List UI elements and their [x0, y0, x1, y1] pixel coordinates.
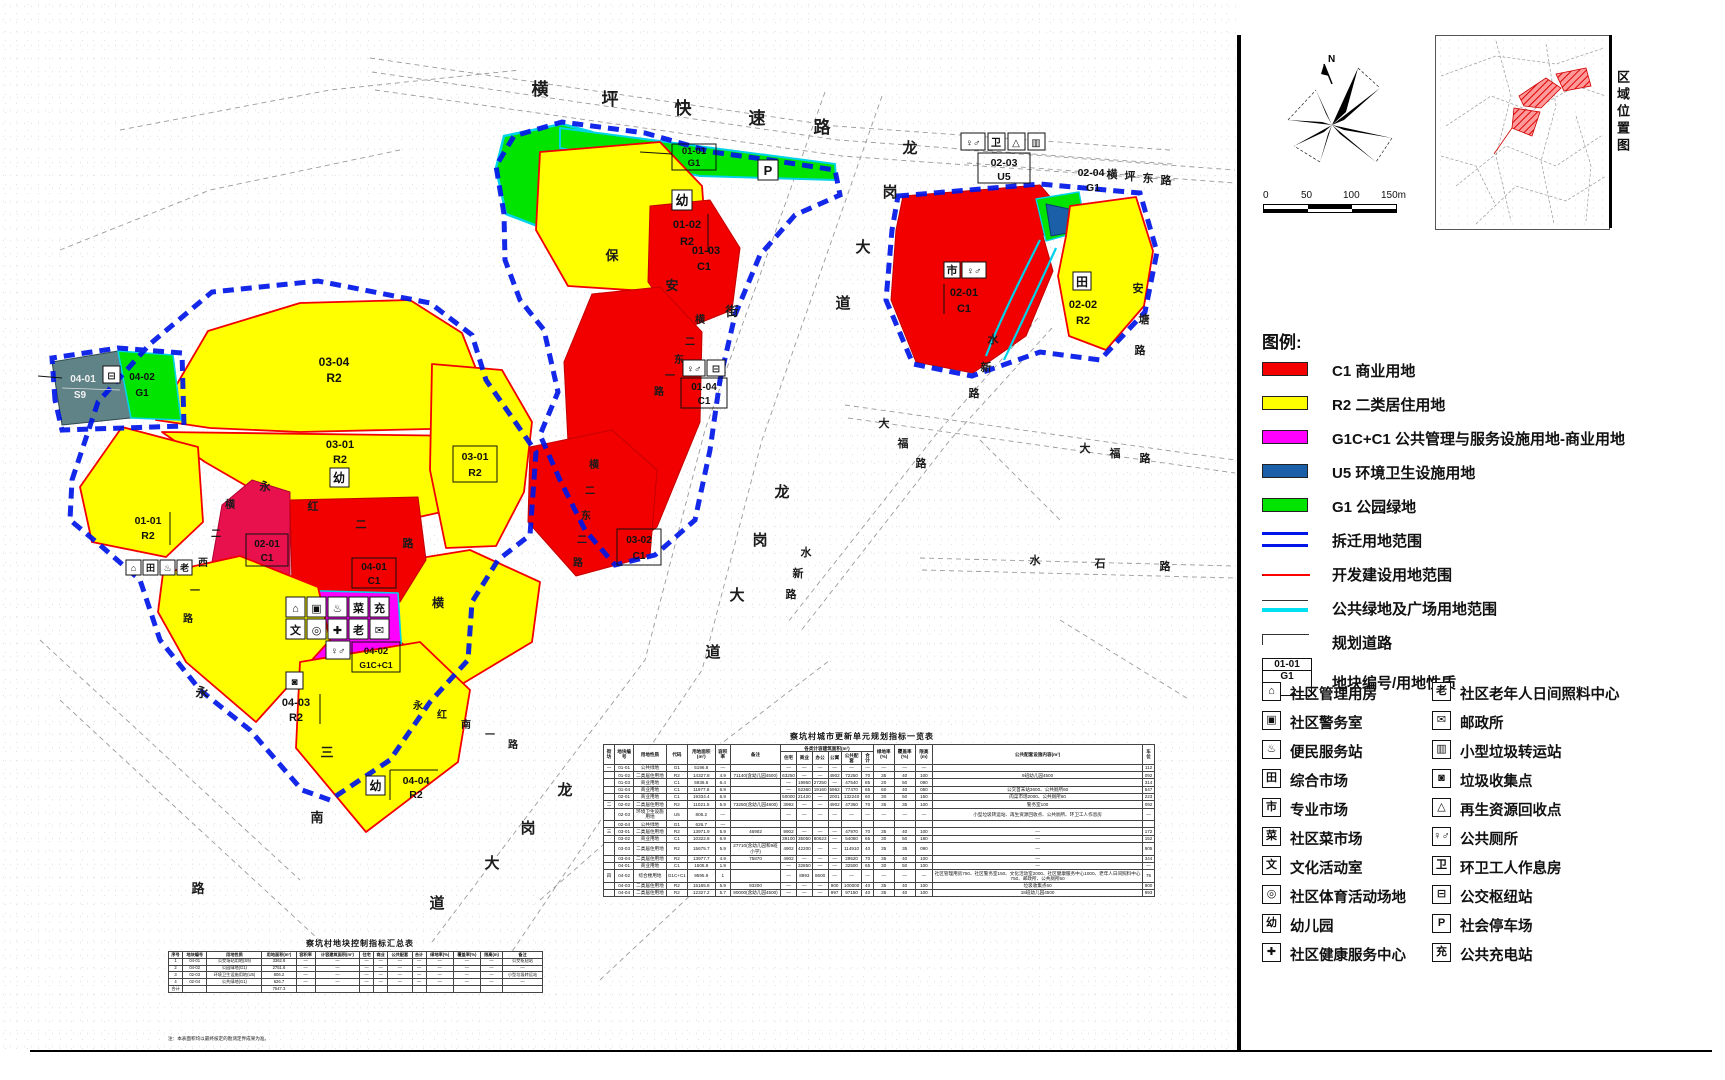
facility-icon: ♀♂ [1432, 827, 1451, 846]
sample-plot-code: 01-01 [1263, 659, 1311, 671]
svg-text:路: 路 [1161, 173, 1173, 187]
svg-text:路: 路 [573, 556, 584, 569]
svg-text:龙: 龙 [901, 139, 917, 157]
plan-sheet: 横坪快速路 横坪东路 龙岗大道 龙岗大道 龙岗大道 保安街 横二东一路 横二东二… [0, 0, 1725, 1080]
svg-text:大: 大 [729, 586, 744, 604]
svg-text:道: 道 [835, 294, 850, 312]
legend-item: G1 公园绿地 [1262, 496, 1722, 518]
facility-icon: 菜 [1262, 827, 1281, 846]
svg-text:04-02: 04-02 [129, 372, 155, 383]
facility-icon: ◙ [1432, 769, 1451, 788]
legend-item-label: C1 商业用地 [1332, 360, 1415, 381]
svg-text:三: 三 [320, 745, 333, 760]
sports-ground-icon: ◎ [307, 619, 326, 639]
svg-text:♨: ♨ [333, 603, 343, 615]
pro-market-icon: 市 [944, 262, 960, 278]
svg-text:△: △ [1012, 138, 1020, 149]
main-indicator-table: 街坊地块编号用地性质代码用地面积(m²)容积率备注各类计容建筑面积(m²)绿地率… [603, 744, 1155, 897]
svg-text:老: 老 [179, 562, 189, 573]
svg-text:水: 水 [988, 332, 1000, 346]
facility-label: 综合市场 [1290, 770, 1348, 791]
main-table-title: 察坑村城市更新单元规划指标一览表 [790, 731, 934, 742]
svg-text:R2: R2 [326, 371, 342, 385]
svg-text:坪: 坪 [1125, 170, 1136, 183]
legend-item-label: G1 公园绿地 [1332, 496, 1416, 517]
svg-text:二: 二 [685, 336, 695, 348]
svg-text:路: 路 [191, 881, 205, 896]
facility-label: 环卫工人作息房 [1460, 857, 1562, 878]
facility-icon: 充 [1432, 943, 1451, 962]
summary-table-title: 察坑村地块控制指标汇总表 [306, 938, 414, 949]
svg-text:二: 二 [585, 485, 595, 497]
svg-text:C1: C1 [261, 553, 274, 564]
svg-text:南: 南 [461, 718, 471, 731]
svg-text:南: 南 [310, 810, 323, 825]
svg-text:红: 红 [308, 499, 319, 513]
legend-key [1262, 574, 1310, 576]
legend-item-label: U5 环境卫生设施用地 [1332, 462, 1475, 483]
svg-text:♀♂: ♀♂ [967, 266, 982, 277]
svg-text:⌂: ⌂ [292, 603, 299, 615]
label-02-03: ♀♂ 卫 △ ▥ 02-03 U5 [961, 133, 1045, 183]
svg-text:▣: ▣ [311, 603, 321, 615]
sanitation-room-icon: 卫 [988, 133, 1005, 150]
facility-icon: △ [1432, 798, 1451, 817]
plot-03-04 [156, 300, 478, 432]
svg-text:01-01: 01-01 [135, 515, 162, 527]
svg-text:♀♂: ♀♂ [331, 646, 346, 657]
svg-text:G1: G1 [1086, 182, 1100, 194]
facility-icon: ⊟ [1432, 885, 1451, 904]
svg-text:C1: C1 [368, 576, 381, 587]
svg-text:街: 街 [724, 304, 738, 319]
svg-text:石: 石 [1094, 557, 1106, 570]
facility-label: 公交枢纽站 [1460, 886, 1533, 907]
svg-text:G1C+C1: G1C+C1 [359, 660, 393, 670]
svg-text:⊟: ⊟ [712, 364, 720, 375]
facility-icon: ✚ [1262, 943, 1281, 962]
svg-text:福: 福 [897, 436, 909, 450]
legend-item-label: 开发建设用地范围 [1332, 564, 1452, 585]
svg-text:龙: 龙 [556, 781, 572, 799]
svg-text:C1: C1 [697, 261, 711, 273]
legend-item-label: 公共绿地及广场用地范围 [1332, 598, 1497, 619]
facility-icon: 老 [1432, 682, 1451, 701]
facility-icon: ◎ [1262, 885, 1281, 904]
svg-text:大: 大 [855, 238, 870, 256]
market-icon: 田 [143, 560, 158, 575]
svg-text:04-01: 04-01 [361, 562, 387, 573]
svg-text:横: 横 [1107, 167, 1119, 181]
facility-label: 邮政所 [1460, 712, 1504, 733]
recycle-point-icon: △ [1008, 133, 1025, 150]
scale-tick: 50 [1301, 190, 1312, 201]
legend-item-label: 规划道路 [1332, 632, 1392, 653]
svg-text:路: 路 [508, 738, 519, 751]
svg-text:02-01: 02-01 [950, 287, 978, 299]
svg-text:永: 永 [412, 699, 424, 712]
plot-04-04 [296, 642, 470, 832]
legend-item: U5 环境卫生设施用地 [1262, 462, 1722, 484]
facility-icon: 文 [1262, 856, 1281, 875]
svg-text:新: 新 [793, 566, 804, 580]
svg-text:03-01: 03-01 [326, 439, 354, 451]
svg-text:保: 保 [604, 248, 619, 263]
facility-label: 社区警务室 [1290, 712, 1363, 733]
svg-text:二: 二 [356, 519, 367, 531]
facility-label: 公共厕所 [1460, 828, 1518, 849]
svg-text:G1: G1 [688, 158, 701, 169]
legend-key [1262, 600, 1308, 612]
svg-text:大: 大 [879, 416, 890, 430]
sheet-bottom-border [30, 1050, 1712, 1052]
svg-text:04-01: 04-01 [70, 374, 96, 385]
bus-hub-icon: ⊟ [103, 366, 120, 383]
svg-text:01-03: 01-03 [692, 245, 720, 257]
svg-text:坪: 坪 [602, 90, 619, 109]
svg-text:安: 安 [665, 278, 678, 293]
health-center-icon: ✚ [328, 619, 347, 639]
facility-icon: ▣ [1262, 711, 1281, 730]
svg-text:永: 永 [194, 685, 209, 700]
svg-text:R2: R2 [1076, 315, 1090, 327]
legend-item: C1 商业用地 [1262, 360, 1722, 382]
svg-text:01-02: 01-02 [673, 219, 701, 231]
legend-item-label: R2 二类居住用地 [1332, 394, 1445, 415]
svg-text:03-02: 03-02 [626, 535, 652, 546]
svg-text:R2: R2 [333, 454, 347, 466]
svg-text:02-03: 02-03 [991, 157, 1018, 169]
svg-text:岗: 岗 [882, 183, 897, 201]
svg-text:04-03: 04-03 [282, 697, 310, 709]
svg-text:✚: ✚ [333, 625, 342, 637]
legend-key [1262, 396, 1308, 410]
svg-text:⌂: ⌂ [131, 563, 136, 573]
svg-text:龙: 龙 [773, 483, 789, 501]
kindergarten-icon: 幼 [672, 190, 692, 210]
scale-tick: 0 [1263, 190, 1269, 201]
culture-room-icon: 文 [286, 619, 305, 639]
summary-table: 序号地块编号用地性质用地面积(m²)容积率计容建筑面积(m²)住宅商业公共配套合… [168, 951, 543, 993]
svg-text:◎: ◎ [312, 625, 322, 637]
locmap-divider [1609, 35, 1612, 228]
svg-text:02-02: 02-02 [1069, 299, 1097, 311]
facility-icon: 市 [1262, 798, 1281, 817]
svg-text:路: 路 [654, 385, 665, 398]
svg-text:红: 红 [437, 708, 447, 721]
svg-text:菜: 菜 [352, 601, 365, 615]
svg-text:G1: G1 [135, 388, 149, 399]
convenience-icon: ♨ [328, 597, 347, 617]
svg-text:岗: 岗 [752, 531, 767, 549]
facility-label: 社区老年人日间照料中心 [1460, 683, 1620, 704]
facility-label: 社会停车场 [1460, 915, 1533, 936]
svg-text:路: 路 [403, 536, 415, 550]
locmap-caption: 区域位置图 [1613, 70, 1632, 155]
svg-text:03-04: 03-04 [319, 355, 350, 369]
svg-text:C1: C1 [957, 303, 971, 315]
svg-text:塘: 塘 [1139, 312, 1150, 326]
svg-text:幼: 幼 [675, 193, 688, 208]
svg-text:♀♂: ♀♂ [966, 138, 981, 149]
svg-text:路: 路 [916, 456, 928, 470]
svg-text:路: 路 [786, 587, 798, 601]
legend-title: 图例: [1262, 328, 1302, 353]
svg-text:速: 速 [749, 108, 766, 128]
svg-text:04-02: 04-02 [364, 646, 388, 657]
svg-text:01-01: 01-01 [682, 146, 707, 157]
market-icon: 田 [1073, 272, 1091, 290]
svg-text:横: 横 [225, 498, 236, 511]
plot-02-01-east [891, 185, 1058, 373]
charging-icon: 充 [370, 597, 389, 617]
svg-text:♨: ♨ [163, 563, 171, 573]
svg-text:横: 横 [695, 313, 706, 326]
svg-text:二: 二 [211, 528, 221, 540]
svg-text:C1: C1 [633, 551, 646, 562]
svg-text:01-04: 01-04 [691, 382, 717, 393]
svg-text:横: 横 [589, 458, 600, 471]
legend-item: R2 二类居住用地 [1262, 394, 1722, 416]
svg-text:C1: C1 [698, 396, 711, 407]
public-toilet-icon: ♀♂ [683, 360, 705, 376]
location-inset-map [1435, 35, 1610, 230]
plot-02-02 [1058, 197, 1153, 350]
summary-table-note: 注：本表面积均以最终核定的勘测定界成果为准。 [168, 1036, 269, 1042]
facility-icon: 幼 [1262, 914, 1281, 933]
police-room-icon: ▣ [307, 597, 326, 617]
public-toilet-icon: ♀♂ [961, 133, 985, 150]
svg-text:R2: R2 [289, 712, 303, 724]
svg-text:新: 新 [981, 360, 992, 374]
svg-text:一: 一 [485, 730, 495, 741]
veg-market-icon: 菜 [349, 597, 368, 617]
svg-text:路: 路 [1135, 343, 1147, 357]
svg-text:永: 永 [259, 479, 272, 493]
facility-icon: ⌂ [1262, 682, 1281, 701]
svg-text:二: 二 [577, 534, 587, 546]
legend-key [1262, 464, 1308, 478]
planning-map: 横坪快速路 横坪东路 龙岗大道 龙岗大道 龙岗大道 保安街 横二东一路 横二东二… [0, 0, 1237, 1050]
facility-icon: ♨ [1262, 740, 1281, 759]
facility-label: 便民服务站 [1290, 741, 1363, 762]
legend-item: 公共绿地及广场用地范围 [1262, 598, 1722, 620]
svg-text:一: 一 [665, 371, 675, 382]
svg-text:充: 充 [374, 601, 385, 615]
legend-item: 拆迁用地范围 [1262, 530, 1722, 552]
compass-north-label: N [1328, 54, 1335, 65]
svg-text:横: 横 [432, 595, 445, 610]
svg-text:03-01: 03-01 [462, 451, 489, 463]
svg-text:岗: 岗 [520, 819, 535, 837]
panel-divider [1237, 35, 1241, 1050]
scale-bar-graphic [1263, 204, 1397, 213]
svg-text:S9: S9 [74, 390, 87, 401]
sample-plot-use: G1 [1263, 671, 1311, 682]
wind-rose [1288, 68, 1392, 162]
mgmt-house-icon: ⌂ [126, 560, 141, 575]
svg-text:路: 路 [969, 386, 981, 400]
svg-text:路: 路 [1140, 451, 1152, 465]
garbage-collect-icon: ◙ [286, 672, 303, 689]
legend-item-label: G1C+C1 公共管理与服务设施用地-商业用地 [1332, 428, 1625, 449]
legend-key [1262, 362, 1308, 376]
svg-text:西: 西 [198, 557, 208, 569]
facility-label: 再生资源回收点 [1460, 799, 1562, 820]
svg-text:文: 文 [290, 623, 302, 637]
svg-text:道: 道 [705, 643, 720, 661]
elderly-care-icon: 老 [177, 560, 192, 575]
svg-text:U5: U5 [997, 171, 1011, 183]
svg-text:大: 大 [484, 854, 499, 872]
svg-text:♀♂: ♀♂ [687, 364, 702, 375]
facility-icon: ▥ [1432, 740, 1451, 759]
legend-item: 开发建设用地范围 [1262, 564, 1722, 586]
svg-text:快: 快 [675, 98, 693, 118]
svg-text:幼: 幼 [369, 778, 381, 793]
facility-icon: 田 [1262, 769, 1281, 788]
svg-text:大: 大 [1080, 441, 1091, 455]
facility-label: 社区健康服务中心 [1290, 944, 1406, 965]
svg-text:东: 东 [1143, 171, 1154, 185]
svg-text:P: P [764, 163, 773, 178]
facility-label: 幼儿园 [1290, 915, 1334, 936]
public-toilet-icon: ♀♂ [326, 641, 350, 659]
facility-label: 垃圾收集点 [1460, 770, 1533, 791]
post-office-icon: ✉ [370, 619, 389, 639]
facility-icon: 卫 [1432, 856, 1451, 875]
facility-label: 社区体育活动场地 [1290, 886, 1406, 907]
legend-item: G1C+C1 公共管理与服务设施用地-商业用地 [1262, 428, 1722, 450]
svg-text:老: 老 [352, 623, 364, 637]
facility-icon: ✉ [1432, 711, 1451, 730]
svg-text:道: 道 [429, 894, 444, 912]
public-toilet-icon: ♀♂ [962, 262, 986, 278]
svg-text:东: 东 [581, 509, 591, 522]
svg-text:02-01: 02-01 [254, 539, 280, 550]
svg-text:卫: 卫 [991, 137, 1001, 149]
svg-text:▥: ▥ [1031, 138, 1040, 149]
mgmt-house-icon: ⌂ [286, 597, 305, 617]
svg-text:福: 福 [1109, 446, 1121, 460]
legend-key [1262, 498, 1308, 512]
facility-label: 社区管理用房 [1290, 683, 1377, 704]
bus-hub-icon: ⊟ [707, 360, 725, 376]
svg-text:02-04: 02-04 [1078, 167, 1105, 179]
legend-key [1262, 430, 1308, 444]
svg-text:水: 水 [1030, 553, 1042, 567]
svg-text:路: 路 [183, 612, 194, 625]
svg-text:路: 路 [1160, 559, 1172, 573]
garbage-transfer-icon: ▥ [1028, 133, 1045, 150]
svg-text:04-04: 04-04 [403, 775, 430, 787]
kindergarten-icon: 幼 [330, 468, 349, 487]
kindergarten-icon: 幼 [366, 776, 385, 795]
compass: N [1280, 50, 1400, 182]
elderly-care-icon: 老 [349, 619, 368, 639]
legend-item: 规划道路 [1262, 632, 1722, 654]
svg-text:市: 市 [947, 263, 958, 277]
scale-bar: 0 50 100 150m [1263, 190, 1399, 218]
svg-text:一: 一 [190, 586, 200, 597]
svg-text:✉: ✉ [375, 625, 384, 637]
parking-icon: P [758, 160, 778, 180]
convenience-icon: ♨ [160, 560, 175, 575]
svg-text:幼: 幼 [333, 470, 345, 485]
project-area-highlight [1494, 68, 1591, 154]
svg-text:田: 田 [1076, 275, 1088, 289]
facility-icon: P [1432, 914, 1451, 933]
legend-item-label: 拆迁用地范围 [1332, 530, 1422, 551]
svg-text:横: 横 [532, 79, 549, 99]
svg-text:◙: ◙ [291, 677, 297, 688]
legend-key [1262, 532, 1308, 547]
facility-label: 公共充电站 [1460, 944, 1533, 965]
facility-label: 社区菜市场 [1290, 828, 1363, 849]
plots [52, 124, 1153, 832]
svg-text:田: 田 [146, 563, 155, 573]
svg-text:⊟: ⊟ [107, 371, 115, 382]
scale-tick: 150m [1381, 190, 1406, 201]
svg-text:R2: R2 [409, 789, 423, 801]
svg-text:R2: R2 [141, 530, 155, 542]
svg-text:R2: R2 [468, 467, 482, 479]
svg-text:安: 安 [1133, 281, 1144, 295]
scale-tick: 100 [1343, 190, 1360, 201]
facility-label: 专业市场 [1290, 799, 1348, 820]
svg-text:水: 水 [801, 545, 813, 559]
svg-text:路: 路 [814, 117, 832, 137]
facility-label: 文化活动室 [1290, 857, 1363, 878]
facility-label: 小型垃圾转运站 [1460, 741, 1562, 762]
legend-key [1262, 634, 1309, 645]
